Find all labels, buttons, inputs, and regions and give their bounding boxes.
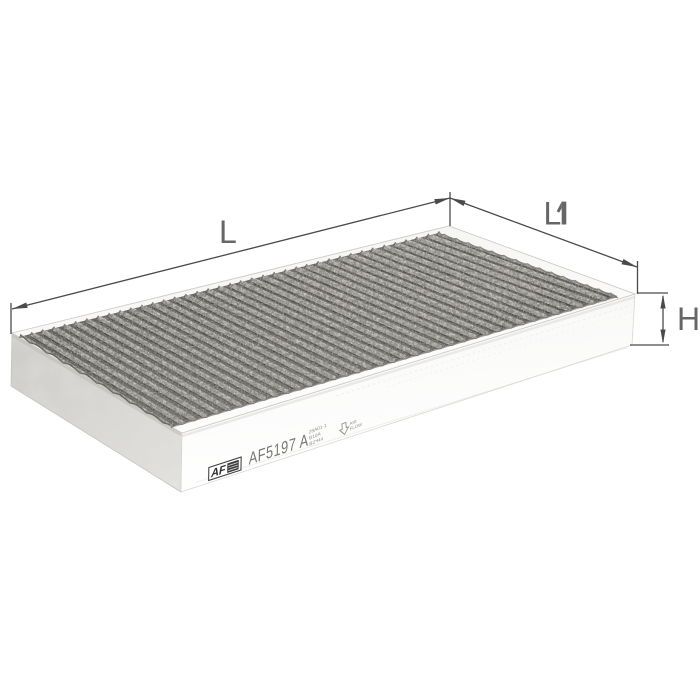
svg-text:L: L (544, 196, 562, 232)
svg-text:L: L (219, 214, 237, 250)
svg-text:H: H (677, 301, 700, 337)
